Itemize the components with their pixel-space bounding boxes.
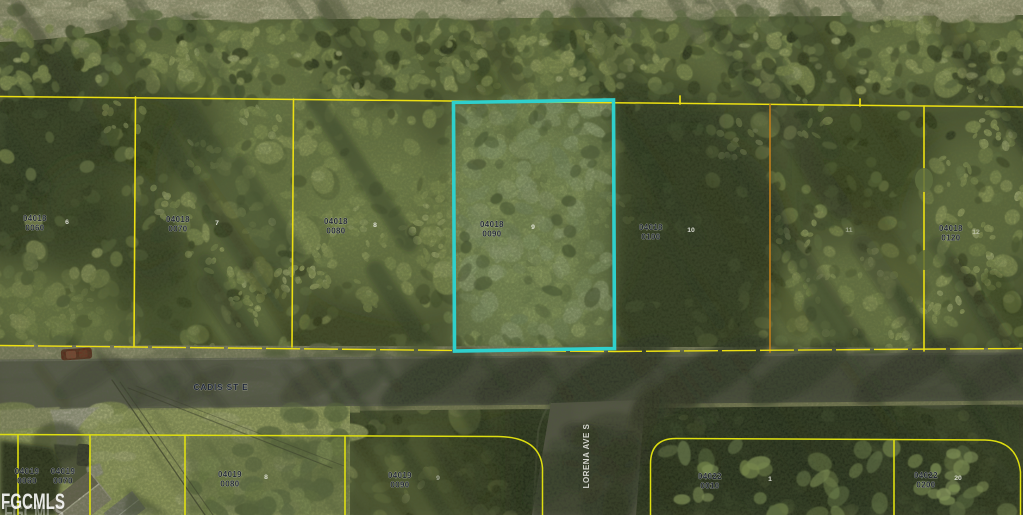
svg-text:04019: 04019: [388, 471, 412, 480]
svg-text:10: 10: [687, 227, 695, 234]
svg-text:9: 9: [531, 224, 535, 231]
svg-text:12: 12: [972, 229, 980, 236]
svg-text:7: 7: [215, 220, 219, 227]
svg-text:6: 6: [65, 219, 69, 226]
svg-text:0060: 0060: [17, 477, 37, 486]
svg-text:04018: 04018: [23, 214, 47, 223]
svg-text:0070: 0070: [53, 477, 73, 486]
svg-text:0070: 0070: [168, 225, 187, 234]
svg-text:8: 8: [264, 474, 268, 481]
svg-text:0090: 0090: [390, 481, 409, 490]
svg-text:9: 9: [436, 475, 440, 482]
svg-text:11: 11: [845, 227, 852, 234]
svg-text:0090: 0090: [482, 230, 501, 239]
svg-text:04019: 04019: [218, 470, 242, 479]
svg-text:20: 20: [954, 475, 962, 482]
svg-text:04018: 04018: [480, 220, 504, 229]
svg-text:04022: 04022: [698, 472, 722, 481]
svg-text:04018: 04018: [939, 224, 963, 233]
svg-text:04019: 04019: [51, 467, 76, 476]
svg-text:04018: 04018: [639, 223, 663, 232]
svg-text:0060: 0060: [25, 224, 44, 233]
svg-text:0080: 0080: [326, 227, 345, 236]
svg-text:04022: 04022: [914, 471, 938, 480]
svg-text:CADIS ST E: CADIS ST E: [194, 382, 249, 392]
svg-text:04018: 04018: [166, 215, 190, 224]
svg-text:1: 1: [768, 476, 772, 483]
svg-text:FGCMLS: FGCMLS: [4, 500, 64, 515]
svg-text:04019: 04019: [15, 467, 40, 476]
svg-text:0120: 0120: [941, 234, 960, 243]
svg-text:0200: 0200: [916, 481, 935, 490]
svg-text:LORENA AVE S: LORENA AVE S: [582, 423, 591, 488]
svg-text:0100: 0100: [641, 233, 660, 242]
svg-text:8: 8: [373, 222, 377, 229]
svg-text:0010: 0010: [700, 482, 719, 491]
svg-text:0080: 0080: [220, 480, 239, 489]
svg-text:04018: 04018: [324, 217, 348, 226]
